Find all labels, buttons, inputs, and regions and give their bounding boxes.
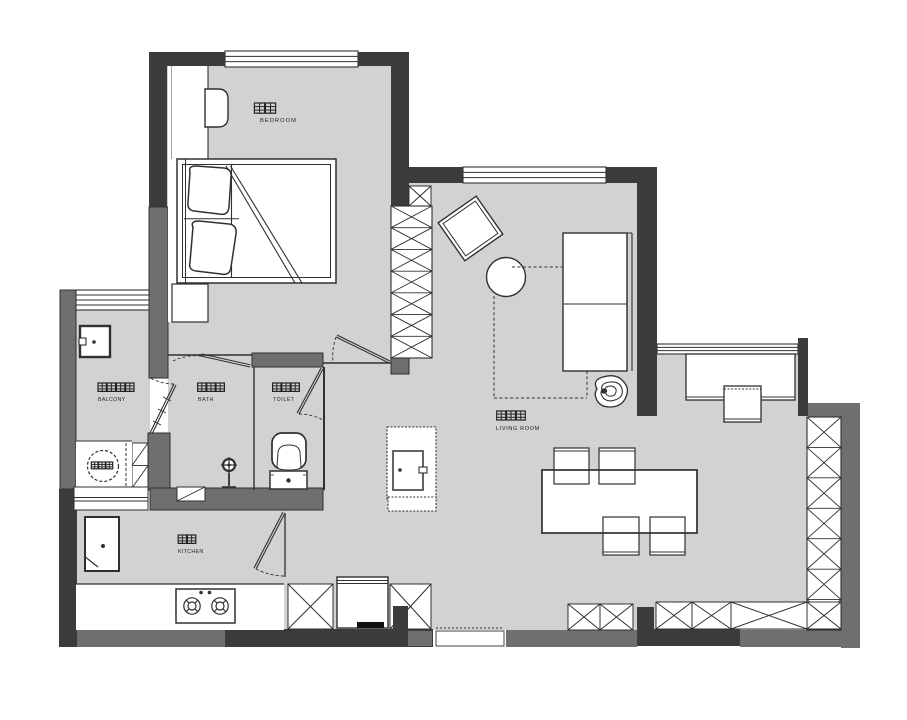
svg-text:KITCHEN: KITCHEN xyxy=(178,549,204,555)
svg-text:BEDROOM: BEDROOM xyxy=(260,118,297,124)
svg-text:TOILET: TOILET xyxy=(273,397,295,403)
svg-text:BATH: BATH xyxy=(198,397,214,403)
svg-text:LIVING ROOM: LIVING ROOM xyxy=(496,426,540,432)
svg-text:BALCONY: BALCONY xyxy=(98,397,126,403)
